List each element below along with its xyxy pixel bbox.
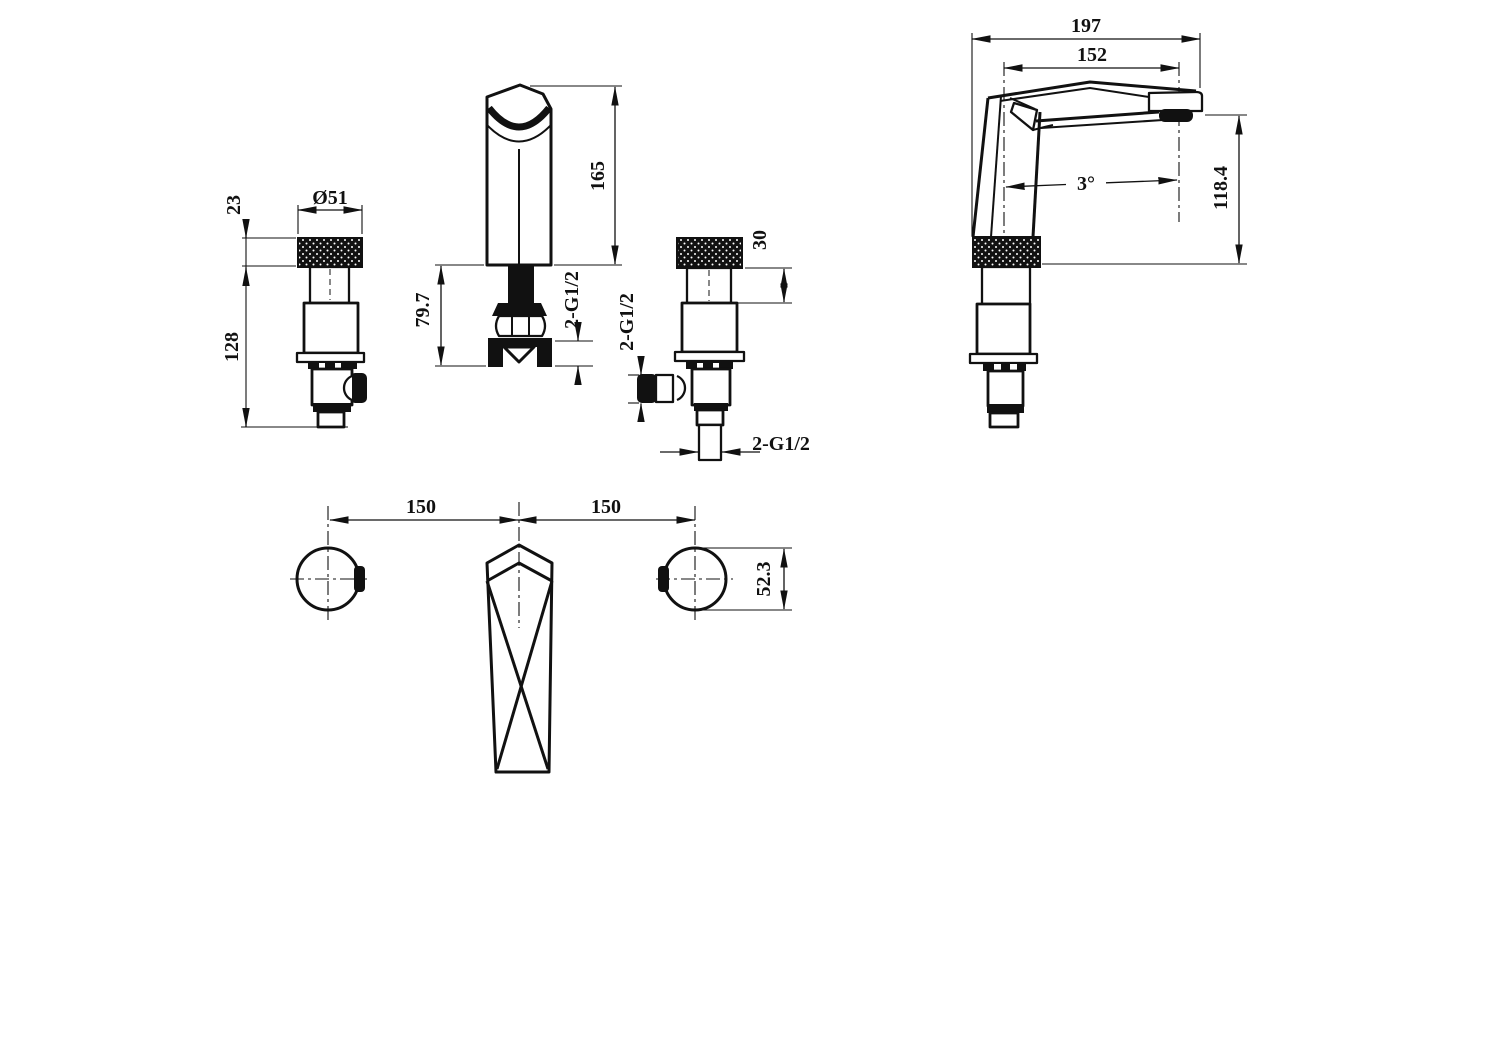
dim-right-center-spacing: 150	[591, 496, 621, 518]
sheet-background	[0, 0, 1497, 1058]
inlet-fitting	[990, 413, 1018, 427]
valve-body	[977, 304, 1030, 354]
lower-cartridge	[988, 371, 1023, 406]
knurled-knob	[677, 238, 742, 268]
dim-handle-diameter: 52.3	[753, 562, 775, 597]
right-port-block	[537, 340, 552, 367]
inlet-fitting	[697, 410, 723, 425]
knurled-knob	[298, 238, 362, 267]
shank-flange	[492, 303, 547, 316]
outlet-connector	[656, 375, 673, 402]
valve-body	[682, 303, 737, 352]
inlet-tube	[699, 425, 721, 460]
left-port-block	[488, 340, 503, 367]
mount-flange	[970, 354, 1037, 363]
mount-flange	[675, 352, 744, 361]
knurled-base-ring	[973, 237, 1040, 267]
technical-drawing: Ø51 23 128 165	[0, 0, 1497, 1058]
dim-under-body-height: 128	[221, 332, 243, 362]
mount-flange	[297, 353, 364, 362]
side-outlet-port	[350, 373, 367, 403]
dim-outlet-height: 118.4	[1210, 166, 1232, 210]
aerator	[1159, 109, 1193, 122]
dim-tilt-angle: 3°	[1077, 173, 1095, 195]
dim-side-port-thread: 2-G1/2	[616, 293, 638, 351]
dim-knurl-height: 23	[223, 195, 245, 215]
dim-overall-projection: 197	[1071, 15, 1101, 37]
valve-body	[304, 303, 358, 353]
lower-cartridge	[692, 369, 730, 405]
mounting-nut	[496, 316, 545, 336]
dim-body-height: 165	[587, 161, 609, 191]
dim-collar-height: 30	[749, 230, 771, 250]
dim-spout-reach: 152	[1077, 44, 1107, 66]
dim-knob-diameter: Ø51	[312, 187, 348, 209]
dim-side-ports-thread: 2-G1/2	[561, 271, 583, 329]
left-handle-index-tab	[354, 566, 365, 592]
spout-tip	[1149, 92, 1202, 111]
threaded-shank	[508, 265, 534, 303]
dim-under-counter-length: 79.7	[412, 293, 434, 328]
drawing-sheet: Ø51 23 128 165	[0, 0, 1497, 1058]
side-outlet-port	[637, 374, 657, 403]
inlet-fitting	[318, 412, 344, 427]
dim-inlet-thread: 2-G1/2	[752, 433, 810, 455]
valve-stem	[982, 267, 1030, 304]
dim-left-center-spacing: 150	[406, 496, 436, 518]
right-handle-index-tab	[658, 566, 669, 592]
